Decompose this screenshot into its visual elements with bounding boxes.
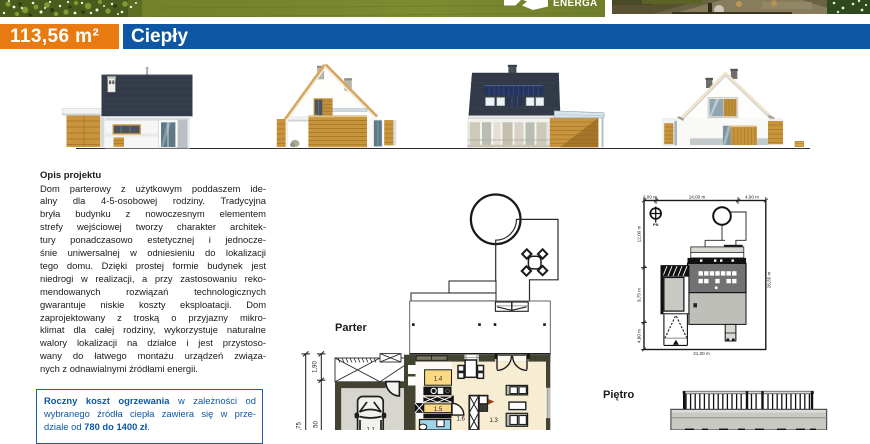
svg-text:21,00 m: 21,00 m <box>693 351 710 356</box>
svg-text:4,80 m: 4,80 m <box>637 329 642 343</box>
svg-text:1,90: 1,90 <box>313 361 319 373</box>
svg-text:1.4: 1.4 <box>434 376 443 382</box>
svg-text:1.3: 1.3 <box>490 418 499 424</box>
svg-text:ENERGA: ENERGA <box>553 0 598 9</box>
svg-text:1.6: 1.6 <box>457 417 466 423</box>
svg-text:2,00 m: 2,00 m <box>643 195 657 200</box>
svg-text:50: 50 <box>314 421 320 428</box>
svg-text:9,75 m: 9,75 m <box>637 288 642 302</box>
svg-text:4,00 m: 4,00 m <box>745 195 759 200</box>
svg-text:14,00 m: 14,00 m <box>689 195 706 200</box>
svg-text:26,55 m: 26,55 m <box>767 272 772 289</box>
svg-text:PN: PN <box>653 223 659 227</box>
svg-text:1.5: 1.5 <box>434 407 443 413</box>
svg-text:12,00 m: 12,00 m <box>637 226 642 243</box>
svg-text:9,75: 9,75 <box>297 422 303 430</box>
